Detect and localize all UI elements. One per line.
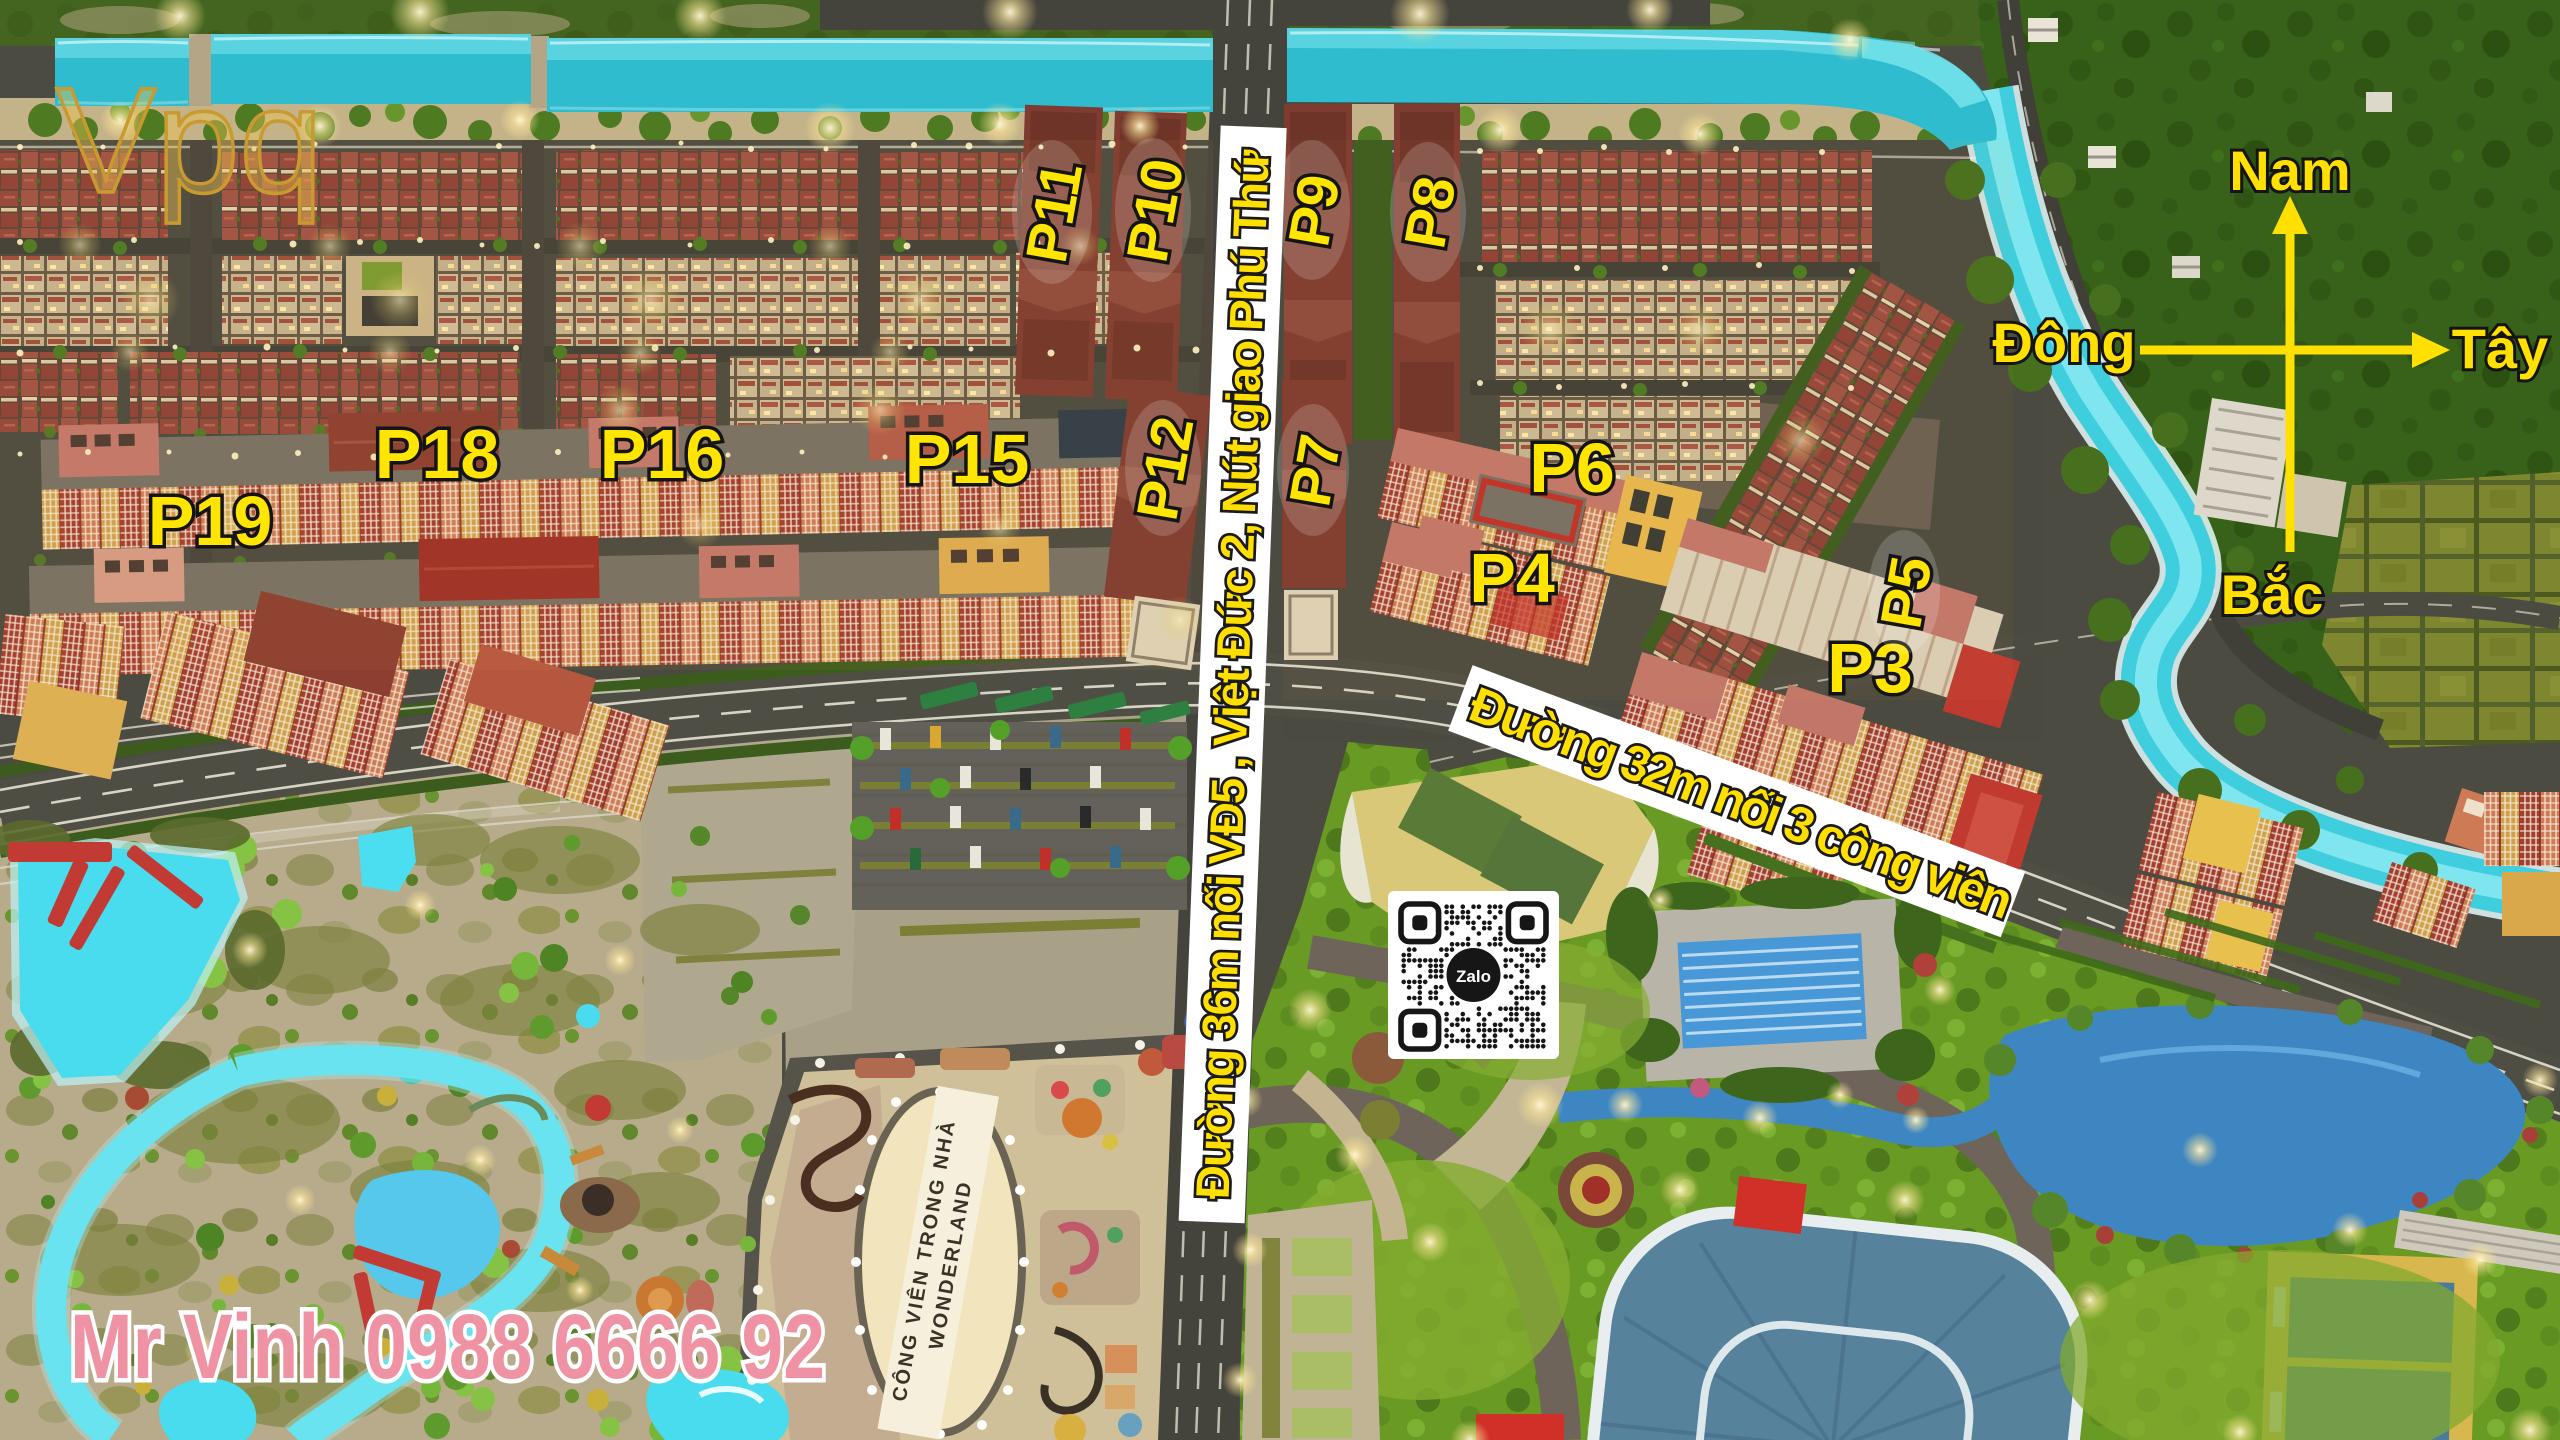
svg-text:P8: P8 — [1392, 172, 1468, 253]
svg-text:Mr Vinh 0988 6666 92: Mr Vinh 0988 6666 92 — [70, 1296, 825, 1398]
svg-text:Tây: Tây — [2452, 317, 2549, 380]
svg-text:Vpq: Vpq — [56, 56, 323, 224]
svg-text:P9: P9 — [1276, 170, 1352, 251]
svg-text:P15: P15 — [905, 420, 1030, 498]
svg-text:Bắc: Bắc — [2221, 563, 2324, 626]
svg-text:P6: P6 — [1529, 429, 1615, 507]
svg-text:P19: P19 — [148, 482, 273, 560]
svg-text:P18: P18 — [375, 415, 500, 493]
svg-text:P5: P5 — [1868, 552, 1944, 633]
svg-text:Đông: Đông — [1992, 311, 2135, 374]
svg-text:P4: P4 — [1469, 539, 1555, 617]
svg-text:Zalo: Zalo — [1456, 967, 1491, 986]
svg-text:Nam: Nam — [2229, 139, 2350, 202]
svg-text:P16: P16 — [600, 415, 725, 493]
svg-text:P7: P7 — [1277, 430, 1353, 511]
